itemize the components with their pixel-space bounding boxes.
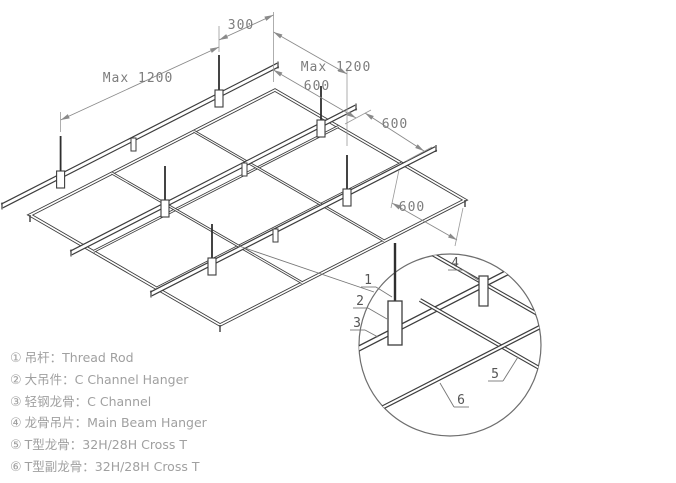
extension-line: [455, 208, 463, 246]
dimension-arrowhead: [264, 15, 273, 21]
legend-marker-2: ②: [10, 373, 22, 388]
callout-2: 2: [356, 294, 364, 309]
legend-marker-4: ④: [10, 416, 22, 431]
detail-circle-outline: [359, 254, 541, 436]
dim-label-hanger-spacing: Max 1200: [103, 71, 174, 86]
detail-circle: 1 2 3 4 5 6: [350, 238, 548, 436]
legend-item-1: ①吊杆：Thread Rod: [10, 348, 207, 370]
legend-marker-5: ⑤: [10, 438, 22, 453]
legend-item-3: ③轻钢龙骨：C Channel: [10, 392, 207, 414]
dimension-arrowhead: [274, 32, 283, 38]
dim-label-tee-3: 600: [399, 200, 425, 215]
callout-6: 6: [457, 393, 465, 408]
legend-text-1: 吊杆：Thread Rod: [25, 350, 134, 365]
dim-label-tee-1: 600: [304, 79, 330, 94]
dim-label-rod-offset: 300: [228, 18, 254, 33]
callout-4: 4: [451, 256, 459, 271]
legend-text-2: 大吊件：C Channel Hanger: [25, 372, 189, 387]
legend-marker-1: ①: [10, 351, 22, 366]
dimension-arrowhead: [448, 234, 457, 240]
detail-channel-hanger: [388, 301, 402, 345]
dimension-arrowhead: [365, 113, 374, 120]
legend-item-6: ⑥T型副龙骨：32H/28H Cross T: [10, 457, 207, 479]
legend: ①吊杆：Thread Rod ②大吊件：C Channel Hanger ③轻钢…: [10, 348, 207, 479]
callout-3: 3: [353, 316, 361, 331]
legend-item-4: ④龙骨吊片：Main Beam Hanger: [10, 413, 207, 435]
callout-5: 5: [491, 367, 499, 382]
dimension-arrowhead: [274, 70, 283, 77]
legend-item-2: ②大吊件：C Channel Hanger: [10, 370, 207, 392]
ceiling-system-diagram: Max 1200 300 Max 1200 600 600 600: [0, 0, 676, 483]
dimension-arrowhead: [61, 114, 70, 120]
legend-text-5: T型龙骨：32H/28H Cross T: [25, 437, 187, 452]
legend-item-5: ⑤T型龙骨：32H/28H Cross T: [10, 435, 207, 457]
dim-label-channel-spacing: Max 1200: [301, 60, 372, 75]
dim-label-tee-2: 600: [382, 117, 408, 132]
dimension-arrowhead: [219, 34, 228, 40]
dimension-arrowhead: [415, 144, 424, 151]
callout-1: 1: [364, 273, 372, 288]
legend-text-6: T型副龙骨：32H/28H Cross T: [25, 459, 200, 474]
legend-marker-6: ⑥: [10, 460, 22, 475]
detail-beam-hanger: [479, 276, 488, 306]
legend-text-3: 轻钢龙骨：C Channel: [25, 394, 152, 409]
dimension-arrowhead: [210, 47, 219, 53]
legend-marker-3: ③: [10, 395, 22, 410]
legend-text-4: 龙骨吊片：Main Beam Hanger: [25, 415, 207, 430]
